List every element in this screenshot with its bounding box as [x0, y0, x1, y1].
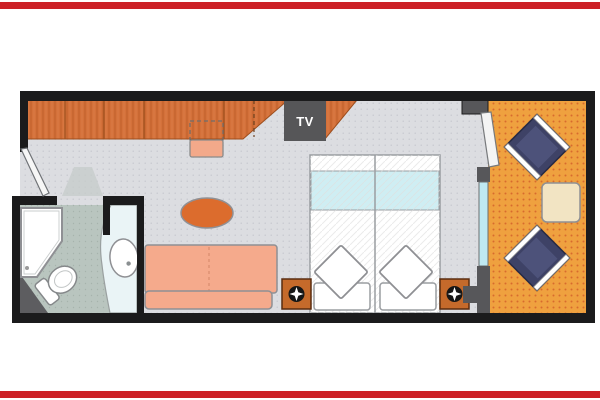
wall-bottom [12, 313, 595, 323]
wall-left-upper [20, 91, 28, 152]
wall-bathroom-right [137, 196, 144, 313]
wall-right [586, 91, 595, 323]
coffee-table [181, 198, 233, 228]
bottom-red-bar [0, 391, 600, 398]
shower-drain [25, 266, 29, 270]
twin-beds [310, 155, 440, 313]
wall-top [20, 91, 595, 101]
wall-bathroom-top-left [12, 196, 57, 205]
bathroom [20, 205, 140, 313]
partition-column [462, 100, 488, 114]
tv-cabinet: TV [284, 100, 326, 141]
balcony [488, 100, 586, 313]
floor-plan-svg: TV [0, 0, 600, 400]
sliding-glass-door [479, 182, 488, 266]
nightstand-left [282, 279, 311, 309]
floor-plan-image: TV [0, 0, 600, 400]
tv-label: TV [296, 114, 314, 129]
balcony-table [542, 183, 580, 222]
sofa [145, 245, 277, 309]
top-red-bar [0, 2, 600, 9]
wall-bathroom-left [12, 196, 20, 323]
wall-bathroom-stub [103, 205, 110, 235]
stool [190, 140, 223, 157]
